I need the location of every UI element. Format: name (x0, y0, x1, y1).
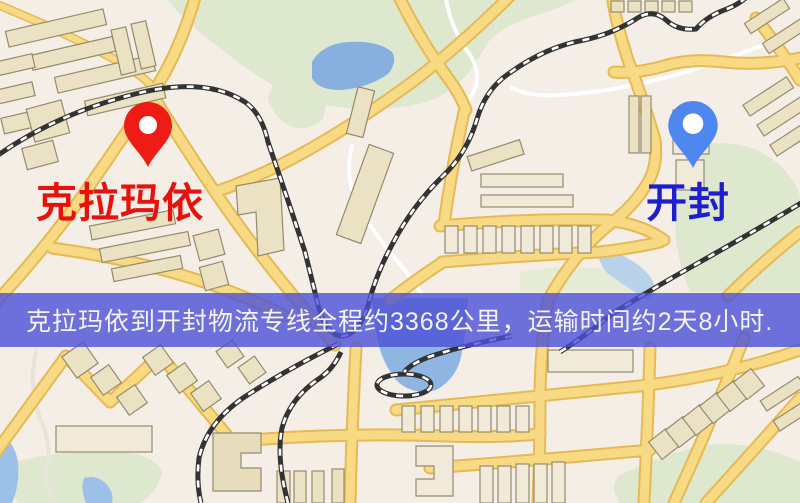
destination-pin-icon[interactable] (668, 101, 718, 169)
destination-pin-hole (683, 113, 704, 134)
origin-pin-shape (124, 102, 172, 167)
origin-pin-icon[interactable] (124, 102, 172, 168)
route-info-text: 克拉玛依到开封物流专线全程约3368公里，运输时间约2天8小时. (0, 302, 773, 338)
origin-label: 克拉玛依 (36, 183, 204, 224)
origin-pin-hole (139, 116, 157, 134)
destination-pin-shape (668, 101, 717, 168)
route-info-banner: 克拉玛依到开封物流专线全程约3368公里，运输时间约2天8小时. (0, 293, 800, 347)
map-background (0, 0, 800, 503)
map-canvas[interactable]: 克拉玛依 开封 克拉玛依到开封物流专线全程约3368公里，运输时间约2天8小时. (0, 0, 800, 503)
destination-label: 开封 (646, 183, 730, 224)
